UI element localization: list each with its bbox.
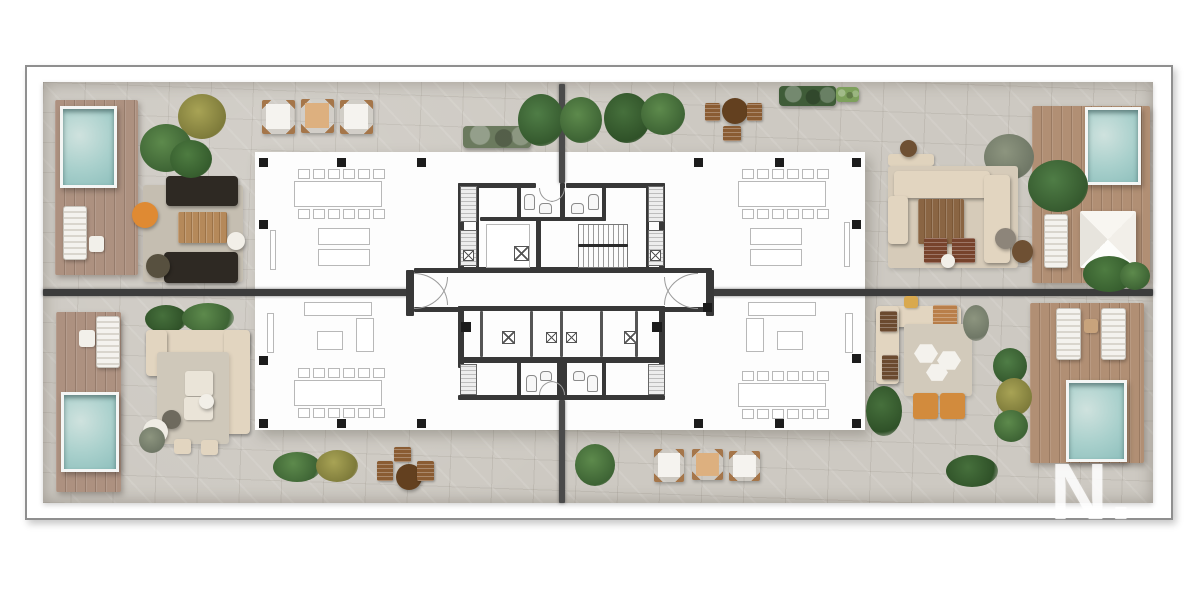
party-wall-right — [712, 289, 1153, 296]
dining-chair — [373, 368, 385, 378]
sink — [540, 371, 552, 381]
dining-chair — [373, 209, 385, 219]
sling-chair — [692, 449, 723, 480]
dining-chair — [817, 169, 829, 179]
bistro-chair — [723, 126, 741, 141]
sling-chair — [262, 100, 295, 134]
structural-column — [775, 419, 784, 428]
closet-wall — [530, 311, 533, 357]
shrub — [1028, 160, 1088, 212]
shaft-symbol — [463, 250, 474, 261]
sink — [573, 371, 585, 381]
dining-chair — [313, 209, 325, 219]
door-leaf — [270, 230, 276, 270]
orange-pouf — [132, 202, 158, 228]
bath-wall — [602, 357, 606, 397]
elevator-symbol — [514, 246, 529, 261]
service-shaft — [460, 364, 477, 395]
lounge-chair — [882, 355, 898, 380]
dining-chair — [817, 371, 829, 381]
dining-table — [738, 181, 826, 207]
dining-chair — [742, 209, 754, 219]
dining-chair — [787, 409, 799, 419]
door-leaf — [845, 313, 853, 353]
dining-chair — [313, 408, 325, 418]
shrub — [641, 93, 685, 135]
planter-pot — [904, 296, 918, 308]
bistro-chair — [394, 447, 411, 462]
toilet — [588, 194, 599, 210]
dining-table — [738, 383, 826, 407]
toilet — [587, 375, 598, 392]
dining-chair — [802, 409, 814, 419]
sling-chair — [301, 99, 334, 133]
armchair — [913, 393, 938, 419]
sun-lounger — [1101, 308, 1126, 360]
dining-chair — [757, 169, 769, 179]
dining-chair — [358, 368, 370, 378]
dining-chair — [817, 409, 829, 419]
elevator-wall — [536, 217, 541, 272]
shrub — [316, 450, 358, 482]
dining-chair — [358, 408, 370, 418]
structural-column — [703, 303, 712, 312]
dining-chair — [757, 371, 769, 381]
dining-chair — [328, 169, 340, 179]
shrub — [963, 305, 989, 341]
shrub — [994, 410, 1028, 442]
shrub — [139, 427, 165, 453]
shrub — [273, 452, 321, 482]
coffee-table — [178, 212, 227, 243]
structural-column — [852, 419, 861, 428]
bistro-table — [722, 98, 748, 124]
dark-pouf — [146, 254, 170, 278]
side-table-round — [199, 394, 214, 409]
dining-chair — [757, 409, 769, 419]
beige-sofa — [894, 171, 990, 198]
side-table-round — [227, 232, 245, 250]
door-leaf — [844, 222, 850, 267]
dining-chair — [817, 209, 829, 219]
structural-column — [417, 158, 426, 167]
structural-column — [852, 158, 861, 167]
side-table — [1084, 319, 1098, 333]
pouf — [1012, 240, 1033, 263]
dining-chair — [313, 368, 325, 378]
kitchen-island — [317, 331, 343, 350]
sun-lounger — [1044, 214, 1068, 268]
sun-lounger — [1056, 308, 1081, 360]
party-wall-left — [43, 289, 410, 296]
dining-chair — [358, 169, 370, 179]
bistro-chair — [705, 103, 720, 121]
closet-symbol — [624, 331, 637, 344]
closet-symbol — [546, 332, 557, 343]
toilet — [524, 194, 535, 210]
dining-chair — [313, 169, 325, 179]
potted-plant — [518, 94, 564, 146]
shrub — [560, 97, 602, 143]
planter-pot — [900, 140, 917, 157]
dining-chair — [802, 169, 814, 179]
side-table-round — [941, 254, 955, 268]
kitchen-counter — [356, 318, 374, 352]
closet-symbol — [566, 332, 577, 343]
dining-chair — [298, 408, 310, 418]
dining-chair — [343, 169, 355, 179]
dining-chair — [328, 408, 340, 418]
dark-sofa — [164, 252, 238, 283]
dining-chair — [373, 408, 385, 418]
closet-wall — [480, 311, 483, 357]
corridor-wall — [414, 268, 460, 273]
planter-box — [779, 86, 836, 106]
dining-chair — [787, 169, 799, 179]
sun-lounger — [63, 206, 87, 260]
lounge-chair — [880, 311, 897, 332]
shrub — [145, 305, 187, 333]
dining-chair — [373, 169, 385, 179]
structural-column — [337, 158, 346, 167]
dining-chair — [772, 209, 784, 219]
structural-column — [652, 322, 662, 332]
beige-sofa — [984, 175, 1010, 263]
corridor-end-cap — [406, 270, 414, 316]
service-shaft — [648, 364, 665, 395]
dark-sofa — [166, 176, 238, 206]
corridor-wall — [663, 268, 712, 273]
structural-column — [852, 220, 861, 229]
closet-wall — [560, 311, 563, 357]
dining-chair — [742, 169, 754, 179]
service-shaft — [648, 186, 664, 222]
bistro-chair — [377, 461, 393, 481]
structural-column — [694, 419, 703, 428]
closet-symbol — [502, 331, 515, 344]
dining-chair — [787, 371, 799, 381]
sink — [539, 203, 552, 214]
closet-wall — [600, 311, 603, 357]
dining-chair — [772, 371, 784, 381]
beige-sofa — [888, 196, 908, 244]
dining-chair — [358, 209, 370, 219]
elevator-wall — [480, 217, 540, 221]
structural-column — [259, 356, 268, 365]
kitchen-island — [318, 228, 370, 245]
dining-chair — [298, 368, 310, 378]
structural-column — [694, 158, 703, 167]
dining-chair — [787, 209, 799, 219]
armchair — [940, 393, 965, 419]
structural-column — [775, 158, 784, 167]
structural-column — [852, 354, 861, 363]
ottoman — [201, 440, 218, 455]
dining-chair — [802, 371, 814, 381]
lounge-chair — [933, 305, 957, 326]
dining-chair — [328, 209, 340, 219]
shaft-symbol — [650, 250, 661, 261]
sling-chair — [729, 451, 760, 481]
pool-top-left — [60, 106, 117, 188]
kitchen-counter — [750, 249, 802, 266]
side-table — [79, 330, 95, 347]
divider-wall-bottom — [559, 400, 565, 503]
ottoman — [174, 439, 191, 454]
dining-chair — [343, 408, 355, 418]
dining-chair — [328, 368, 340, 378]
brand-watermark: N. — [1050, 452, 1134, 532]
pool-bottom-left — [61, 392, 119, 472]
armchair — [185, 371, 213, 396]
stair-handrail — [578, 244, 628, 247]
dining-chair — [343, 368, 355, 378]
shrub — [946, 455, 998, 487]
bath-wall — [517, 183, 521, 221]
bistro-chair — [747, 103, 762, 121]
structural-column — [259, 158, 268, 167]
dining-chair — [757, 209, 769, 219]
shrub — [1120, 262, 1150, 290]
kitchen-counter — [304, 302, 372, 316]
structural-column — [417, 419, 426, 428]
structural-column — [461, 322, 471, 332]
sink — [571, 203, 584, 214]
structural-column — [259, 419, 268, 428]
bath-wall — [517, 357, 521, 397]
sun-lounger — [96, 316, 120, 368]
plan-elements — [0, 0, 1200, 591]
sling-chair — [340, 100, 373, 134]
service-shaft — [460, 186, 477, 222]
toilet — [526, 375, 537, 392]
dining-chair — [772, 169, 784, 179]
kitchen-counter — [318, 249, 370, 266]
bistro-chair — [417, 461, 434, 481]
armchair — [952, 238, 975, 263]
dining-chair — [343, 209, 355, 219]
pool-top-right — [1085, 107, 1141, 185]
dining-chair — [742, 409, 754, 419]
kitchen-counter — [746, 318, 764, 352]
dining-chair — [802, 209, 814, 219]
floorplan-image: N. — [0, 0, 1200, 591]
bath-wall — [602, 183, 606, 221]
structural-column — [259, 220, 268, 229]
kitchen-island — [750, 228, 802, 245]
dining-table — [294, 380, 382, 406]
kitchen-counter — [748, 302, 816, 316]
dining-chair — [742, 371, 754, 381]
side-table — [89, 236, 104, 252]
door-leaf — [267, 313, 274, 353]
shrub — [866, 386, 902, 436]
dining-chair — [298, 209, 310, 219]
structural-column — [337, 419, 346, 428]
dining-chair — [772, 409, 784, 419]
shrub — [575, 444, 615, 486]
planter-box — [836, 87, 859, 102]
shrub — [170, 140, 212, 178]
shrub — [182, 303, 234, 333]
sling-chair — [654, 449, 684, 482]
dining-chair — [298, 169, 310, 179]
dining-table — [294, 181, 382, 207]
kitchen-island — [777, 331, 803, 350]
